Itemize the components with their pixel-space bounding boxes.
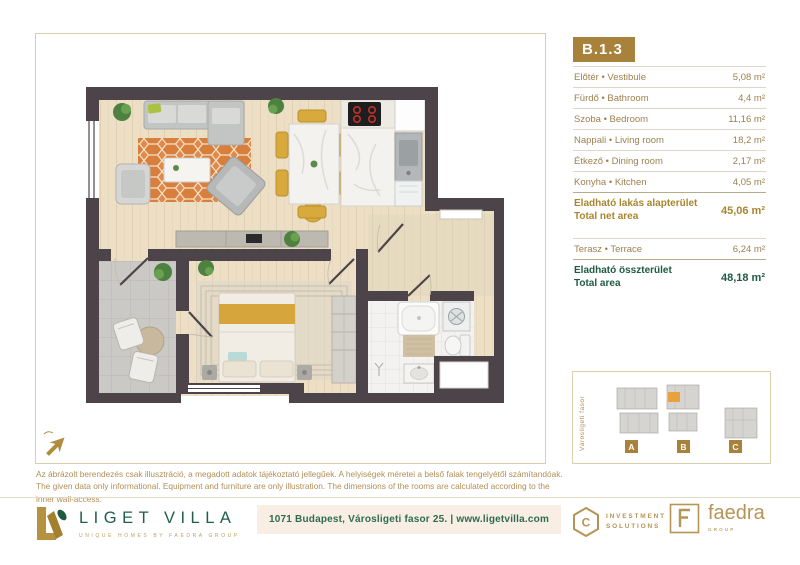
address-bar: 1071 Budapest, Városligeti fasor 25. | w… (257, 505, 561, 534)
street-label: Városligeti fasor (579, 396, 586, 451)
brand-name: LIGET VILLA (79, 509, 240, 528)
highlighted-unit (668, 392, 680, 402)
room-area: 6,24 m² (733, 244, 765, 255)
bed (219, 293, 295, 382)
room-label: Nappali • Living room (574, 135, 664, 146)
room-area: 4,05 m² (733, 177, 765, 188)
room-label: Szoba • Bedroom (574, 114, 648, 125)
room-label: Előtér • Vestibule (574, 72, 646, 83)
room-label: Terasz • Terrace (574, 244, 642, 255)
total-label-en: Total area (574, 278, 672, 291)
faedra-name: faedra (708, 503, 765, 523)
room-area: 4,4 m² (738, 93, 765, 104)
hob (348, 102, 381, 126)
bedroom-furniture (196, 281, 356, 383)
disclaimer-hu: Az ábrázolt berendezés csak illusztráció… (36, 468, 566, 480)
total-value: 48,18 m² (721, 272, 765, 284)
table-row: Konyha • Kitchen 4,05 m² (573, 172, 766, 193)
total-net-area: Eladható lakás alapterület Total net are… (573, 193, 766, 229)
faedra-logo: faedra GROUP (669, 503, 765, 534)
table-row: Szoba • Bedroom 11,16 m² (573, 109, 766, 130)
brand-block: LIGET VILLA UNIQUE HOMES BY FAEDRA GROUP (79, 509, 240, 539)
room-table: Előtér • Vestibule 5,08 m² Fürdő • Bathr… (573, 66, 766, 193)
total-net-label-hu: Eladható lakás alapterület (574, 198, 697, 211)
shaft-niche (440, 362, 488, 388)
north-arrow-icon (43, 432, 70, 460)
building-badges: A B C (625, 440, 742, 453)
room-area: 18,2 m² (733, 135, 765, 146)
faedra-icon (669, 503, 700, 534)
total-net-label-en: Total net area (574, 211, 697, 224)
unit-badge: B.1.3 (573, 37, 635, 62)
total-area: Eladható összterület Total area 48,18 m² (573, 260, 766, 296)
tv (246, 234, 262, 243)
faedra-sub: GROUP (708, 527, 765, 532)
room-label: Konyha • Kitchen (574, 177, 647, 188)
brand-tagline: UNIQUE HOMES BY FAEDRA GROUP (79, 533, 240, 539)
table-row: Fürdő • Bathroom 4,4 m² (573, 88, 766, 109)
table-row-terrace: Terasz • Terrace 6,24 m² (573, 238, 766, 260)
floor-plan-frame (35, 33, 546, 464)
footer-divider (0, 497, 800, 498)
site-plan: Városligeti fasor A B C (573, 372, 770, 463)
site-plan-box: Városligeti fasor A B C (572, 371, 771, 464)
coffee-table (164, 158, 210, 182)
terrace-chair (128, 351, 158, 384)
kitchen-furniture (341, 98, 425, 206)
investment-solutions-icon: C (572, 507, 600, 537)
kitchen-counter (341, 128, 395, 206)
room-area: 5,08 m² (733, 72, 765, 83)
investment-line1: INVESTMENT (606, 512, 666, 522)
building-badge-b: B (680, 442, 686, 452)
total-label-hu: Eladható összterület (574, 265, 672, 278)
room-label: Fürdő • Bathroom (574, 93, 649, 104)
disclaimer: Az ábrázolt berendezés csak illusztráció… (36, 468, 566, 505)
investment-solutions-logo: C INVESTMENT SOLUTIONS (572, 507, 666, 537)
building-badge-a: A (628, 442, 634, 452)
liget-villa-logo-icon (30, 501, 74, 547)
room-label: Étkező • Dining room (574, 156, 663, 167)
investment-line2: SOLUTIONS (606, 522, 666, 532)
fridge (395, 98, 425, 131)
unit-info-panel: B.1.3 Előtér • Vestibule 5,08 m² Fürdő •… (573, 37, 766, 296)
total-net-value: 45,06 m² (721, 205, 765, 217)
toilet (445, 335, 470, 356)
room-area: 11,16 m² (728, 114, 765, 125)
room-area: 2,17 m² (733, 156, 765, 167)
disclaimer-en: The given data only informational. Equip… (36, 480, 566, 505)
building-badge-c: C (732, 442, 738, 452)
bathroom-sink (404, 364, 434, 383)
entrance-door (440, 210, 482, 219)
washing-machine (443, 302, 470, 331)
floor-plan (36, 34, 544, 462)
table-row: Étkező • Dining room 2,17 m² (573, 151, 766, 172)
table-row: Előtér • Vestibule 5,08 m² (573, 67, 766, 88)
dishwasher (395, 181, 422, 206)
table-row: Nappali • Living room 18,2 m² (573, 130, 766, 151)
wardrobe (332, 296, 356, 383)
svg-text:C: C (582, 516, 591, 530)
